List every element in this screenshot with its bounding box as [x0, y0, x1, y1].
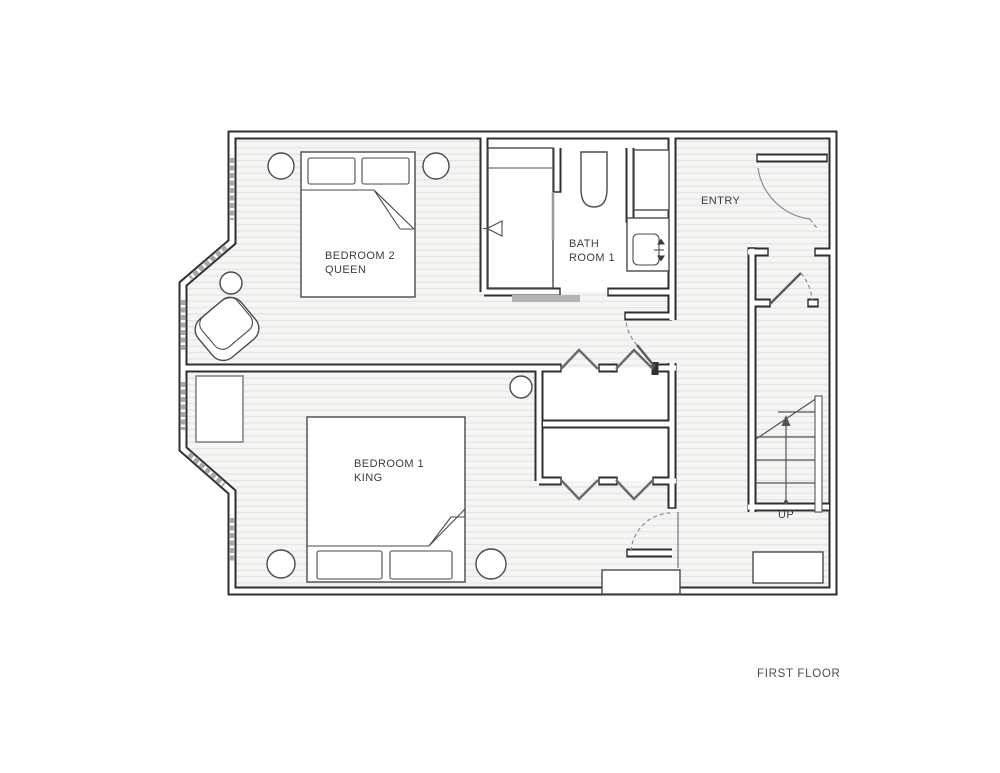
plan-title: FIRST FLOOR	[757, 668, 841, 680]
toilet	[581, 152, 607, 207]
floor-plan-drawing: BEDROOM 2QUEEN BATHROOM 1 ENTRY BEDROOM …	[0, 0, 1000, 773]
bedroom2-bed-size: QUEEN	[325, 264, 366, 276]
round-side-table	[510, 376, 532, 398]
bathroom1-name-line2: ROOM 1	[569, 252, 615, 264]
round-side-table	[268, 153, 294, 179]
hall-bench	[753, 552, 823, 583]
closet-upper-floor	[539, 368, 672, 424]
round-side-table	[423, 153, 449, 179]
floor-plan-page: BEDROOM 2QUEEN BATHROOM 1 ENTRY BEDROOM …	[0, 0, 1000, 773]
king-bed	[307, 417, 465, 582]
bathroom-door-threshold	[512, 295, 580, 302]
bathroom1-name-line1: BATH	[569, 238, 599, 250]
entry-label: ENTRY	[701, 195, 741, 207]
bedroom1-name: BEDROOM 1	[354, 458, 424, 470]
stair-handrail	[815, 396, 822, 512]
entry-closet-cabinet	[634, 150, 669, 210]
round-side-table	[267, 550, 295, 578]
dresser	[196, 376, 243, 442]
closet-lower-floor	[539, 424, 672, 481]
bedroom1-bed-size: KING	[354, 472, 383, 484]
round-side-table	[476, 549, 506, 579]
bedroom2-name: BEDROOM 2	[325, 250, 395, 262]
round-side-table	[220, 272, 242, 294]
bottom-wall-plinth	[602, 570, 680, 594]
arrow-start-dot	[784, 500, 788, 504]
shower-stall	[488, 148, 553, 288]
stairs-up-label: UP	[778, 509, 794, 521]
